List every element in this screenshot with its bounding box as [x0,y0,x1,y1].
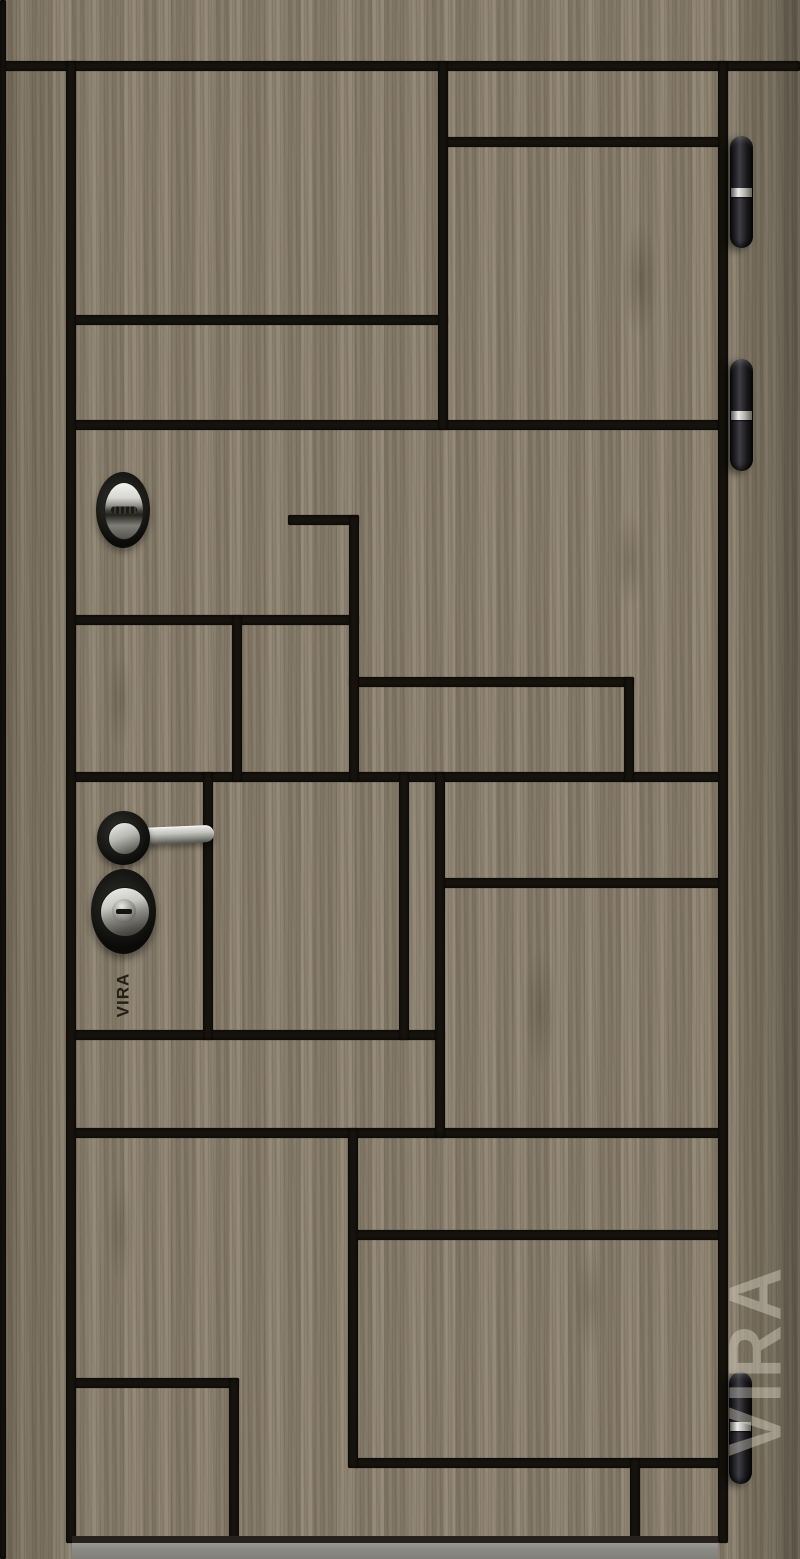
handle-rosette-chrome [108,822,141,855]
groove-segment [348,1128,358,1468]
floor-threshold [72,1543,718,1559]
groove-segment [624,677,634,782]
brand-stamp-text: VIRA [113,973,133,1018]
groove-segment [71,315,448,325]
groove-segment [399,772,409,1040]
groove-segment [71,1128,723,1138]
brand-stamp: VIRA [88,960,158,1030]
groove-segment [232,615,242,782]
hinge [730,359,753,471]
handle-rosette [97,811,150,865]
groove-segment [0,0,6,1559]
lock-cylinder-escutcheon [91,869,156,954]
peephole [96,472,150,548]
hinge-chrome-band [731,188,752,197]
groove-segment [435,772,445,1138]
groove-segment [349,515,359,782]
groove-segment [203,772,213,1040]
door-photo: VIRA VIRA [0,0,800,1559]
groove-segment [349,677,634,687]
keyhole-slot [116,909,132,914]
peephole-lens-slot [111,507,137,514]
groove-segment [438,61,448,430]
groove-segment [630,1458,640,1543]
groove-segment [71,1378,239,1388]
groove-segment [71,1030,445,1040]
brand-watermark: VIRA [713,1264,798,1457]
groove-segment [0,61,800,71]
groove-segment [71,615,359,625]
left-frame-stile [6,71,66,1559]
hinge-chrome-band [731,411,752,420]
groove-segment [66,61,76,1543]
groove-segment [440,878,723,888]
groove-segment [353,1458,723,1468]
lock-cylinder-chrome [100,887,150,937]
peephole-chrome-ring [104,482,144,540]
groove-segment [71,420,723,430]
groove-segment [353,1230,723,1240]
hinge [730,136,753,248]
lock-cylinder-core [112,899,136,923]
groove-segment [443,137,723,147]
groove-segment [229,1378,239,1543]
